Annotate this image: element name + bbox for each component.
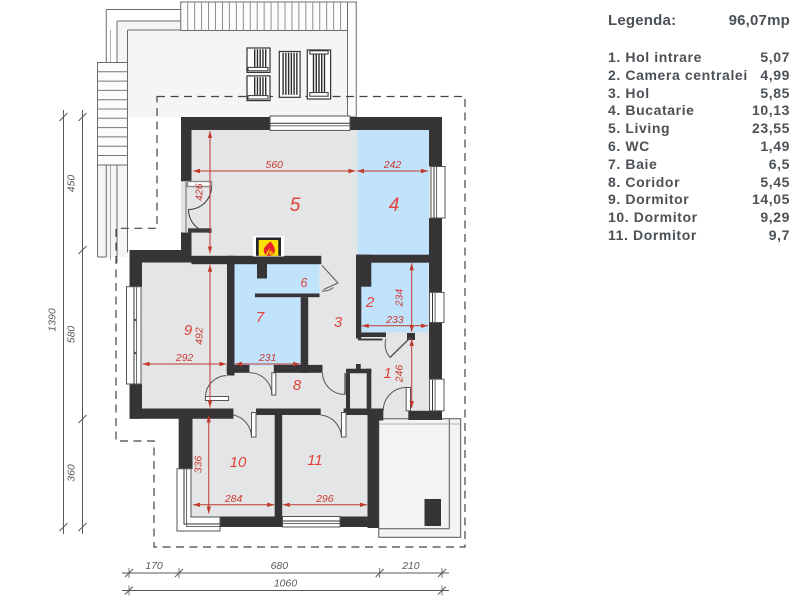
svg-text:9: 9 [184,322,193,339]
svg-text:6: 6 [301,276,308,290]
svg-text:5: 5 [290,195,301,216]
svg-text:10: 10 [230,454,247,471]
svg-text:246: 246 [394,365,406,384]
svg-text:3: 3 [334,314,343,331]
svg-text:210: 210 [401,560,420,572]
svg-text:292: 292 [175,352,194,364]
svg-text:360: 360 [66,464,78,482]
svg-text:234: 234 [394,289,406,308]
svg-text:560: 560 [265,159,283,171]
svg-text:8: 8 [293,377,302,394]
svg-text:426: 426 [194,183,206,201]
svg-text:1390: 1390 [47,308,59,332]
svg-text:296: 296 [315,493,334,505]
svg-text:7: 7 [256,309,265,326]
svg-text:680: 680 [271,560,289,572]
svg-text:1060: 1060 [274,578,298,590]
svg-text:492: 492 [194,327,206,345]
svg-text:450: 450 [66,175,78,193]
svg-text:242: 242 [383,159,402,171]
svg-text:336: 336 [192,456,204,474]
svg-text:1: 1 [383,365,391,382]
svg-text:170: 170 [145,560,163,572]
svg-text:580: 580 [66,326,78,344]
svg-text:4: 4 [389,195,400,216]
svg-text:2: 2 [365,294,375,311]
svg-text:284: 284 [224,493,243,505]
svg-text:233: 233 [385,314,404,326]
svg-text:231: 231 [258,352,277,364]
svg-text:11: 11 [307,452,323,469]
